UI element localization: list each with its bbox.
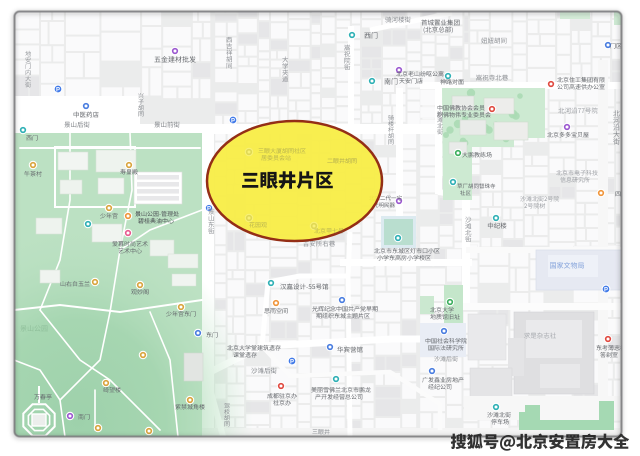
svg-text:P: P bbox=[56, 87, 60, 93]
svg-text:P: P bbox=[290, 359, 294, 365]
svg-text:P: P bbox=[231, 118, 235, 124]
svg-text:P: P bbox=[207, 206, 211, 212]
svg-text:P: P bbox=[604, 287, 608, 293]
